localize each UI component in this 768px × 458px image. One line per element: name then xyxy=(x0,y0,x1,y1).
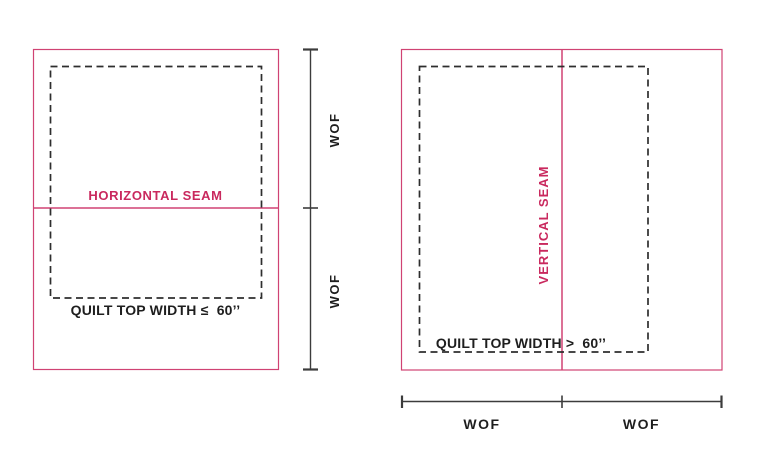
wof-label-bottom: WOF xyxy=(328,274,342,309)
wof-label-right: WOF xyxy=(562,417,721,432)
quilt-top-width-label-right: QUILT TOP WIDTH > 60’’ xyxy=(401,336,641,351)
wof-label-top: WOF xyxy=(328,113,342,148)
horizontal-seam-label: HORIZONTAL SEAM xyxy=(33,189,278,203)
vertical-seam-label: VERTICAL SEAM xyxy=(537,166,551,285)
backing-rect-left xyxy=(34,50,279,370)
quilt-top-dashed-outline-right xyxy=(420,67,649,353)
quilt-top-width-label-left: QUILT TOP WIDTH ≤ 60’’ xyxy=(33,303,278,318)
quilt-top-dashed-outline-left xyxy=(51,67,262,299)
quilt-backing-seam-diagram: HORIZONTAL SEAM QUILT TOP WIDTH ≤ 60’’ W… xyxy=(0,0,768,458)
diagram-linework xyxy=(0,0,768,458)
wof-label-left: WOF xyxy=(402,417,562,432)
